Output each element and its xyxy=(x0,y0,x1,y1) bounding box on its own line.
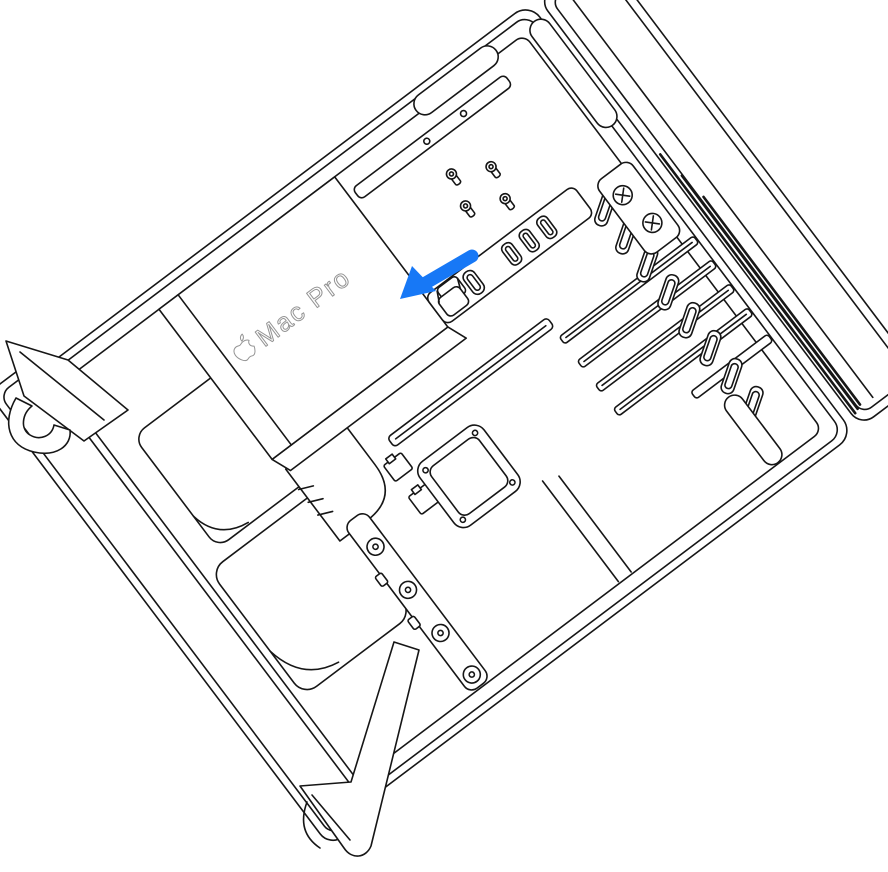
illustration-canvas: Mac Pro xyxy=(0,0,888,872)
drawing-root: Mac Pro xyxy=(0,0,888,856)
mac-pro-side-illustration: Mac Pro xyxy=(0,0,888,872)
chassis: Mac Pro xyxy=(26,0,857,813)
